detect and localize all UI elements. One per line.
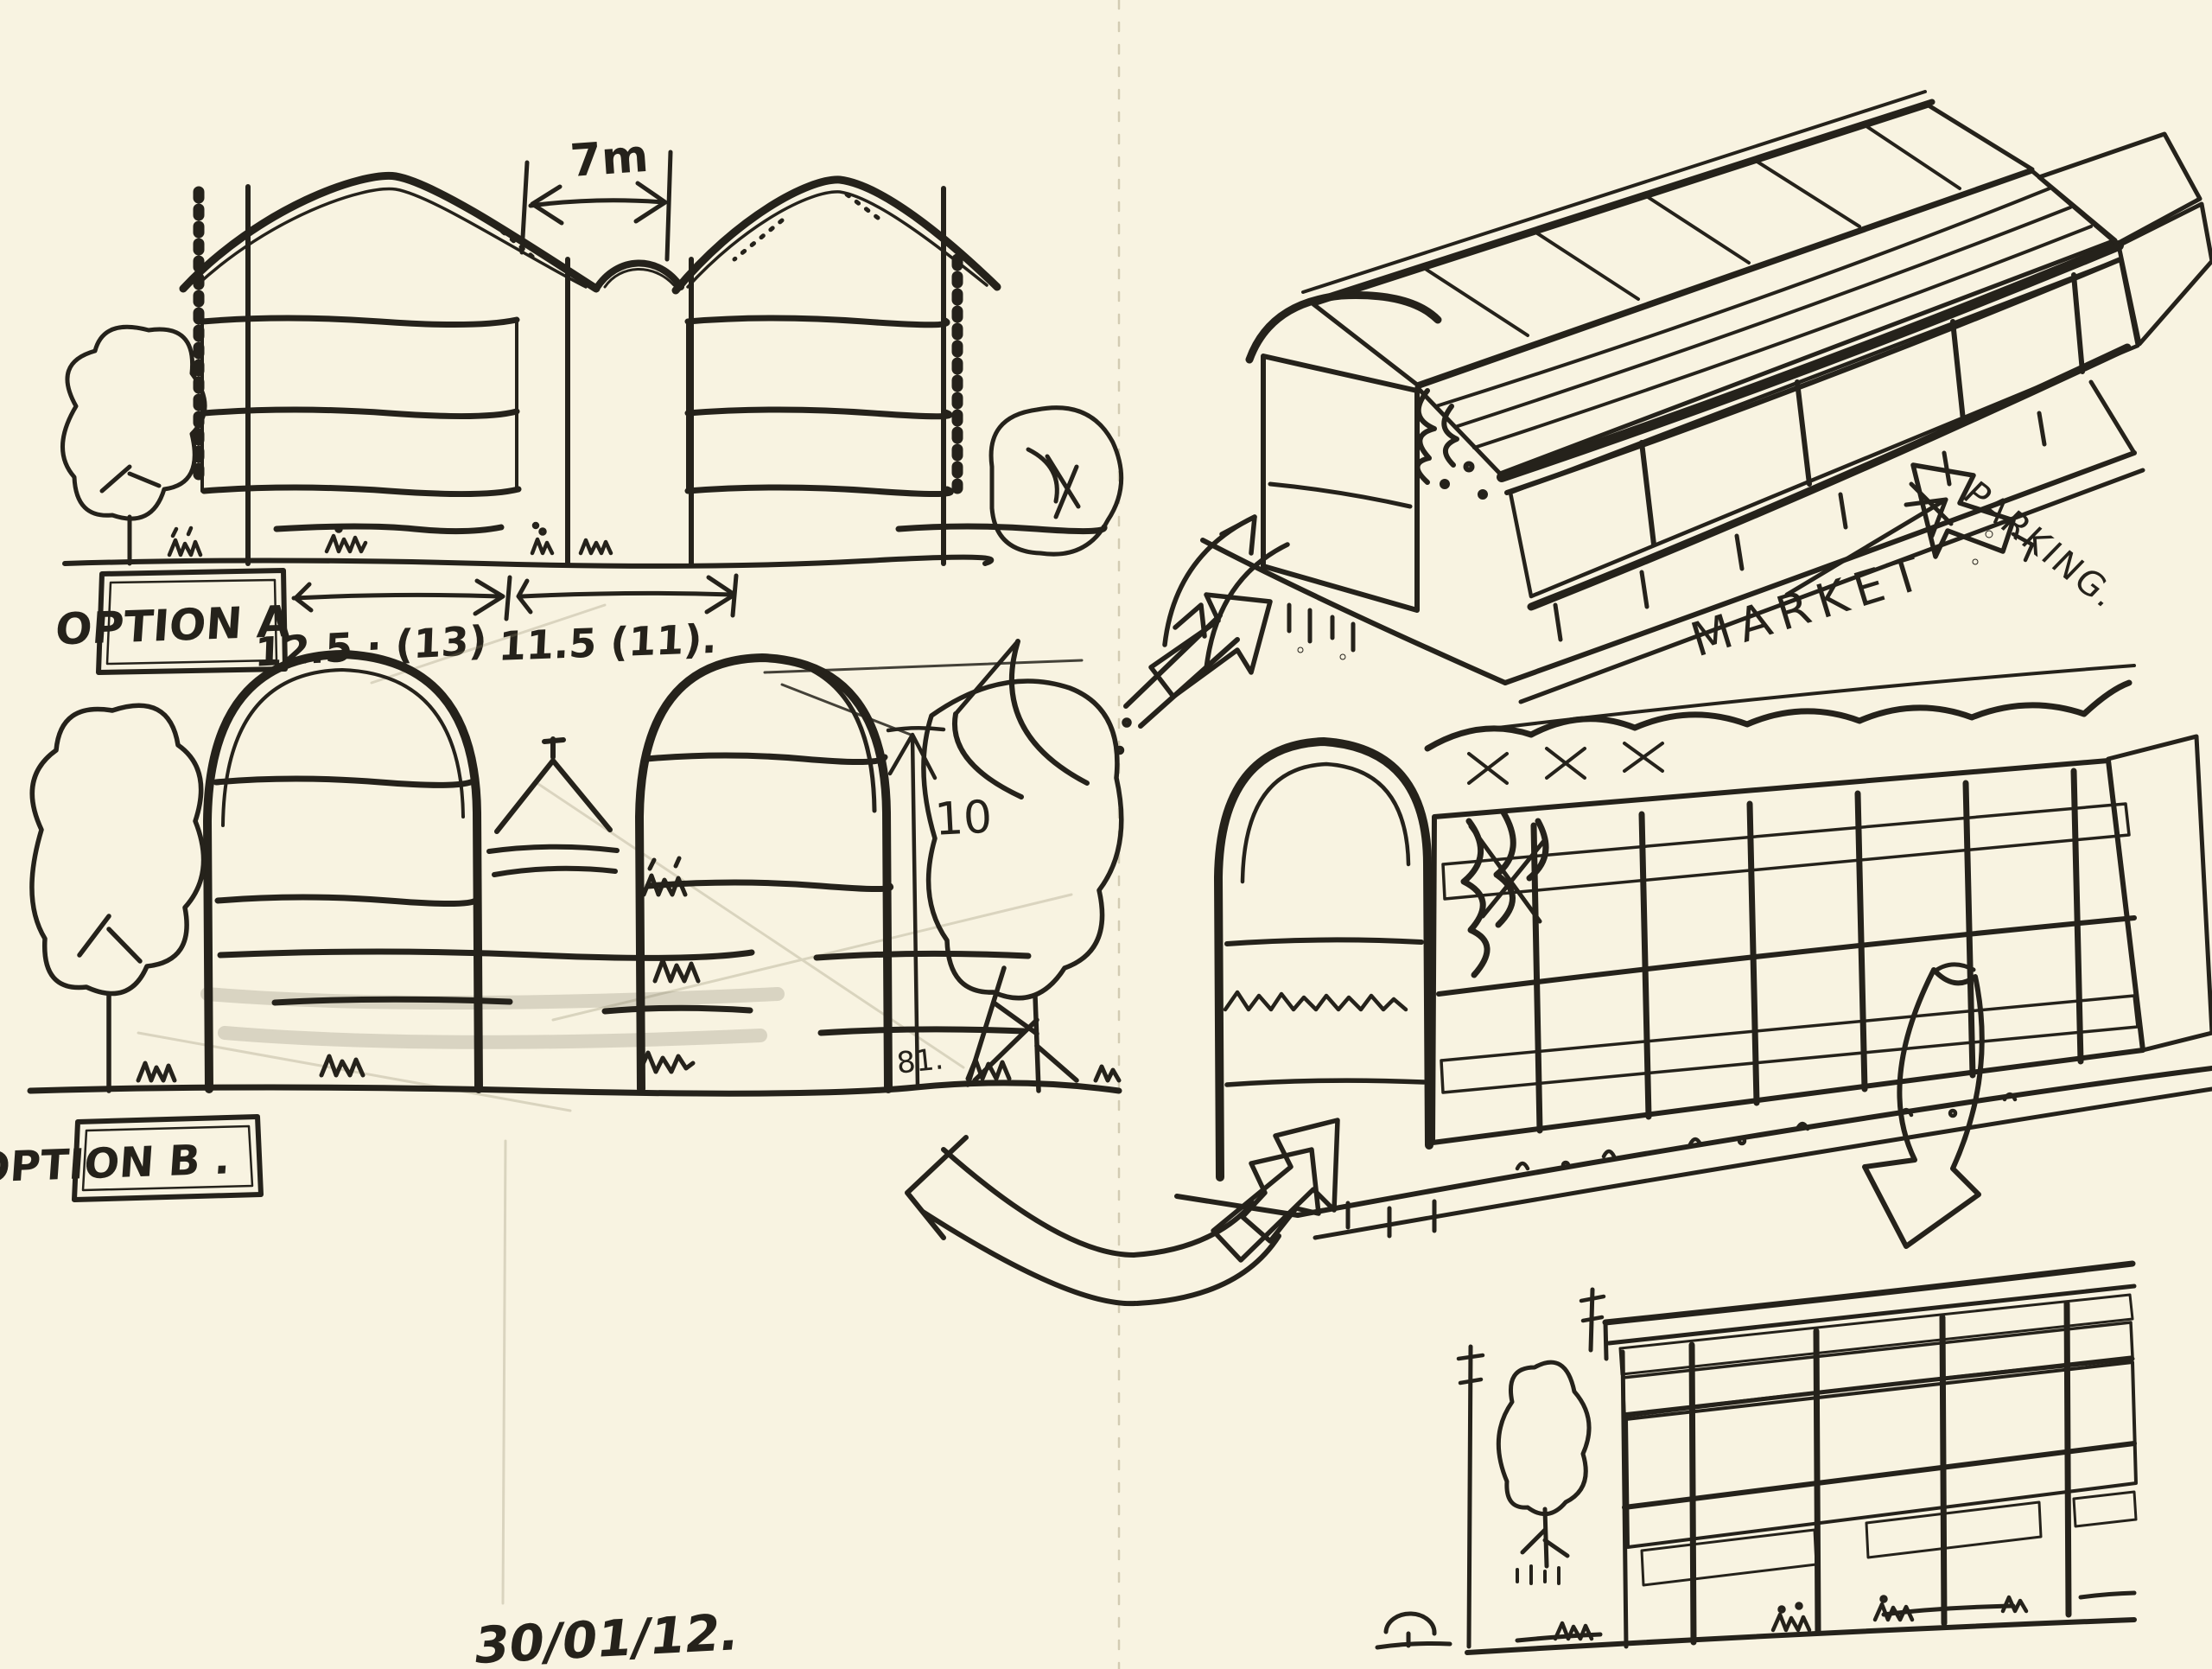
roof-valley-scribble xyxy=(1417,391,1485,497)
right-end-gable xyxy=(2039,134,2200,244)
dimension-7m: 7m xyxy=(522,131,671,259)
gable-roof-middle xyxy=(596,263,681,289)
arched-volume-right xyxy=(639,657,891,1089)
market-aerial-sketch: MARKET PARKING. xyxy=(1165,92,2212,702)
scan-edge-marks xyxy=(0,130,5,1500)
dimension-bays: 12.5 · (13) 11.5 (11). xyxy=(254,576,736,676)
tree-icon xyxy=(1498,1362,1589,1583)
gable-roof-left xyxy=(183,175,596,289)
ground-note-label: 81. xyxy=(895,1042,945,1080)
option-b-label: OPTION B . xyxy=(0,1135,232,1192)
ground-line xyxy=(30,1083,1119,1093)
sketchbook-scan: 7m OPTION A 12.5 · (13) 11.5 (11). xyxy=(0,0,2212,1669)
dimension-7m-label: 7m xyxy=(569,131,650,188)
ink-drips xyxy=(205,1114,727,1316)
height-dimension-label: 10 xyxy=(933,792,993,846)
elevation-sketch xyxy=(1377,1264,2136,1653)
vault-perspective-sketch xyxy=(1177,666,2212,1260)
dimension-height-10: 10 81. xyxy=(888,728,994,1087)
connector-arrow-bottom xyxy=(907,1137,1319,1303)
option-b-section-sketch: 10 81. OPTION B . 30/01/12. xyxy=(0,605,1129,1669)
right-bay-dimension-label: 11.5 (11). xyxy=(498,615,719,670)
ground-line xyxy=(65,557,991,566)
roof-vault-band xyxy=(1417,171,2115,474)
mushroom-shrub-icon xyxy=(1377,1614,1450,1647)
arched-volume-left xyxy=(207,654,479,1089)
paper-background xyxy=(0,0,2212,1669)
pencil-construction-lines xyxy=(138,605,1071,1603)
option-b-label-box: OPTION B . xyxy=(0,1117,261,1200)
floor-slabs-right xyxy=(688,318,950,494)
vault-ridge xyxy=(1427,683,2129,749)
market-annotation: MARKET xyxy=(1685,484,1993,667)
connector-arrow-top xyxy=(955,595,1270,797)
umbrella-kiosk-icon xyxy=(489,739,617,875)
building-left-end xyxy=(1249,296,1438,659)
barrel-end-wall xyxy=(1218,719,1429,1177)
market-label: MARKET xyxy=(1685,544,1935,667)
tree-icon xyxy=(32,705,204,1091)
gable-roof-right xyxy=(676,180,997,290)
tree-icon xyxy=(62,327,205,564)
option-a-section-sketch: 7m OPTION A 12.5 · (13) 11.5 (11). xyxy=(54,131,1122,676)
date-note: 30/01/12. xyxy=(471,1602,742,1669)
